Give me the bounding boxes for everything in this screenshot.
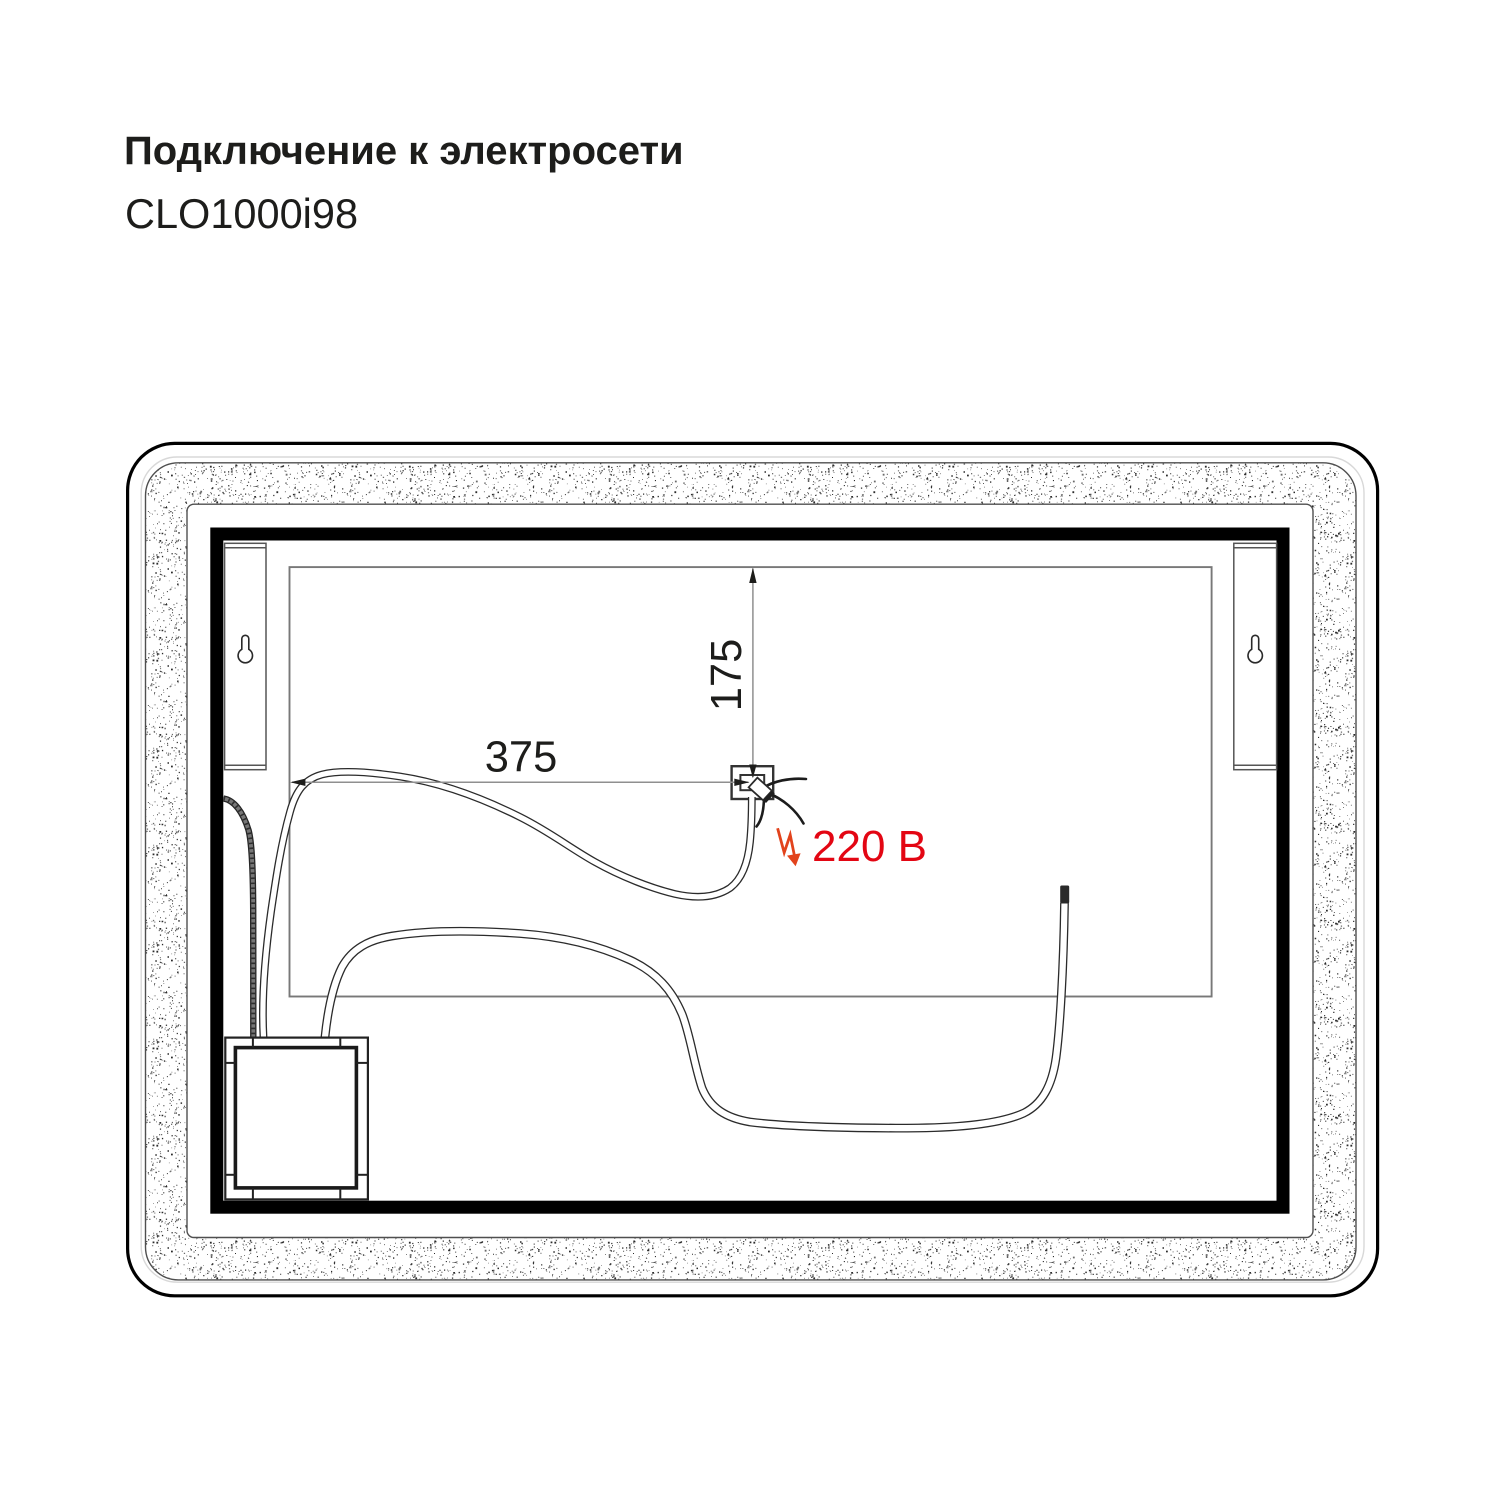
svg-text:175: 175	[703, 639, 751, 712]
svg-text:220 В: 220 В	[812, 822, 927, 871]
svg-text:Подключение к электросети: Подключение к электросети	[124, 129, 684, 173]
svg-text:CLO1000i98: CLO1000i98	[125, 190, 358, 237]
svg-text:375: 375	[485, 734, 558, 782]
